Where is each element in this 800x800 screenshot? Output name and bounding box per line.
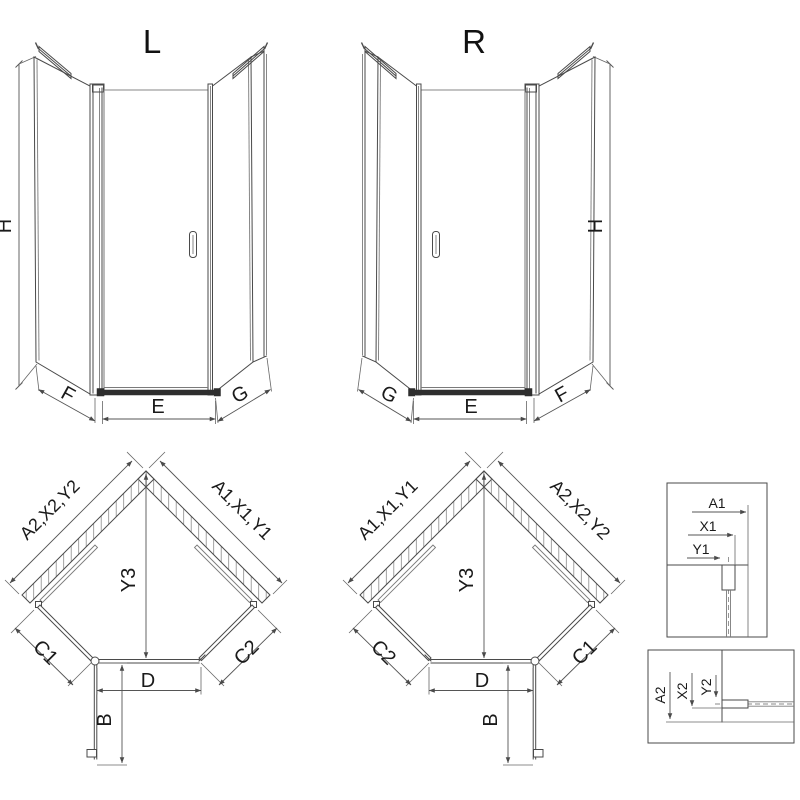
plan-door-handle <box>87 750 97 758</box>
wall-profile <box>722 700 748 708</box>
front-right-label-G: G <box>377 381 401 408</box>
front-left-label-G: G <box>228 381 252 408</box>
plan-left-label-wall-left: A2,X2,Y2 <box>16 476 84 544</box>
door-hinge <box>91 657 99 665</box>
detail-top-label-Y1: Y1 <box>692 541 709 557</box>
right-side-panel <box>213 57 254 394</box>
front-view-linework <box>16 43 272 425</box>
drawing-canvas: L H F E G R H G E F A2,X2,Y2 A1,X1,Y1 Y3… <box>0 0 800 800</box>
front-left-label-F: F <box>57 382 78 407</box>
wall-profile <box>722 565 735 590</box>
detail-bottom-label-A2: A2 <box>652 686 668 703</box>
door-glass <box>104 90 208 388</box>
plan-right-label-B: B <box>480 713 502 726</box>
threshold-bar <box>103 390 215 395</box>
wall-hatch-right <box>138 471 270 603</box>
front-left-label-H: H <box>0 219 16 233</box>
detail-bottom-label-Y2: Y2 <box>698 678 714 695</box>
plan-right-label-Y3: Y3 <box>456 568 478 592</box>
detail-top-label-A1: A1 <box>708 495 725 511</box>
detail-box-a2x2y2 <box>648 650 794 743</box>
front-left-label-E: E <box>151 396 164 418</box>
front-view-linework-mirrored <box>358 43 614 425</box>
detail-bottom-label-X2: X2 <box>674 682 690 699</box>
front-right-label-F: F <box>551 382 572 407</box>
left-side-panel <box>34 57 90 394</box>
front-right-title: R <box>462 23 486 60</box>
plan-left-label-Y3: Y3 <box>118 568 140 592</box>
front-right-label-E: E <box>464 396 477 418</box>
plan-left-label-C2: C2 <box>230 636 264 670</box>
plan-right-label-D: D <box>475 670 489 692</box>
plan-right-label-C1: C1 <box>568 636 602 670</box>
detail-top-label-X1: X1 <box>699 518 716 534</box>
plan-left-label-C1: C1 <box>28 636 62 670</box>
plan-left-label-B: B <box>94 713 116 726</box>
plan-right-label-C2: C2 <box>366 636 400 670</box>
plan-left-label-D: D <box>141 670 155 692</box>
plan-right-label-wall-right: A2,X2,Y2 <box>546 476 614 544</box>
plan-left-label-wall-right: A1,X1,Y1 <box>208 476 276 544</box>
front-right-label-H: H <box>585 219 607 233</box>
plan-right-label-wall-left: A1,X1,Y1 <box>354 476 422 544</box>
front-left-title: L <box>143 23 161 60</box>
technical-drawing-sheet: L H F E G R H G E F A2,X2,Y2 A1,X1,Y1 Y3… <box>0 0 800 800</box>
